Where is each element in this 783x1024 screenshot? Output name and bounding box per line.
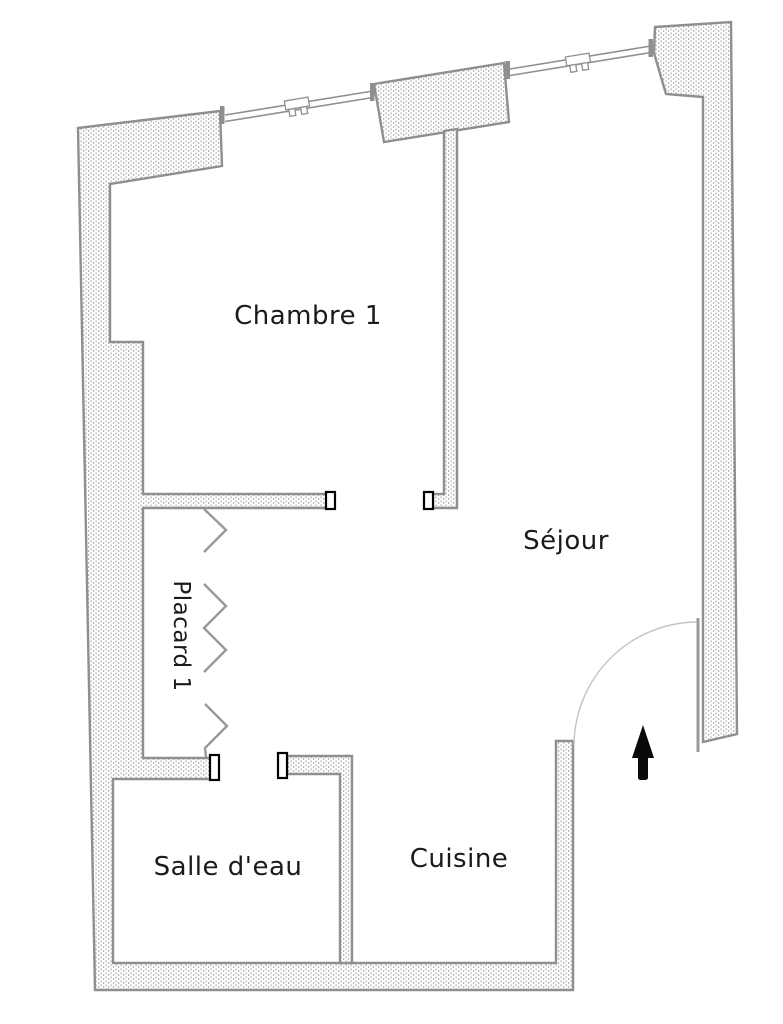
room-label-placard-1: Placard 1 (168, 580, 194, 691)
window-handle-icon (284, 97, 310, 117)
floor-plan: Chambre 1 Séjour Placard 1 Salle d'eau C… (0, 0, 783, 1024)
exterior-walls (78, 22, 737, 990)
interior-walls (287, 129, 457, 963)
room-label-cuisine: Cuisine (410, 844, 509, 874)
entrance-arrow-icon (632, 725, 654, 780)
door-jambs (210, 492, 433, 780)
floor-plan-drawing (0, 0, 783, 1024)
room-label-salle-deau: Salle d'eau (154, 852, 303, 882)
room-label-sejour: Séjour (523, 526, 609, 556)
window-1 (220, 83, 375, 124)
window-2 (506, 39, 654, 79)
room-label-chambre-1: Chambre 1 (234, 301, 382, 331)
folding-door-zigzag-icon (204, 509, 227, 757)
window-handle-icon (565, 53, 591, 73)
entry-door (574, 618, 698, 752)
